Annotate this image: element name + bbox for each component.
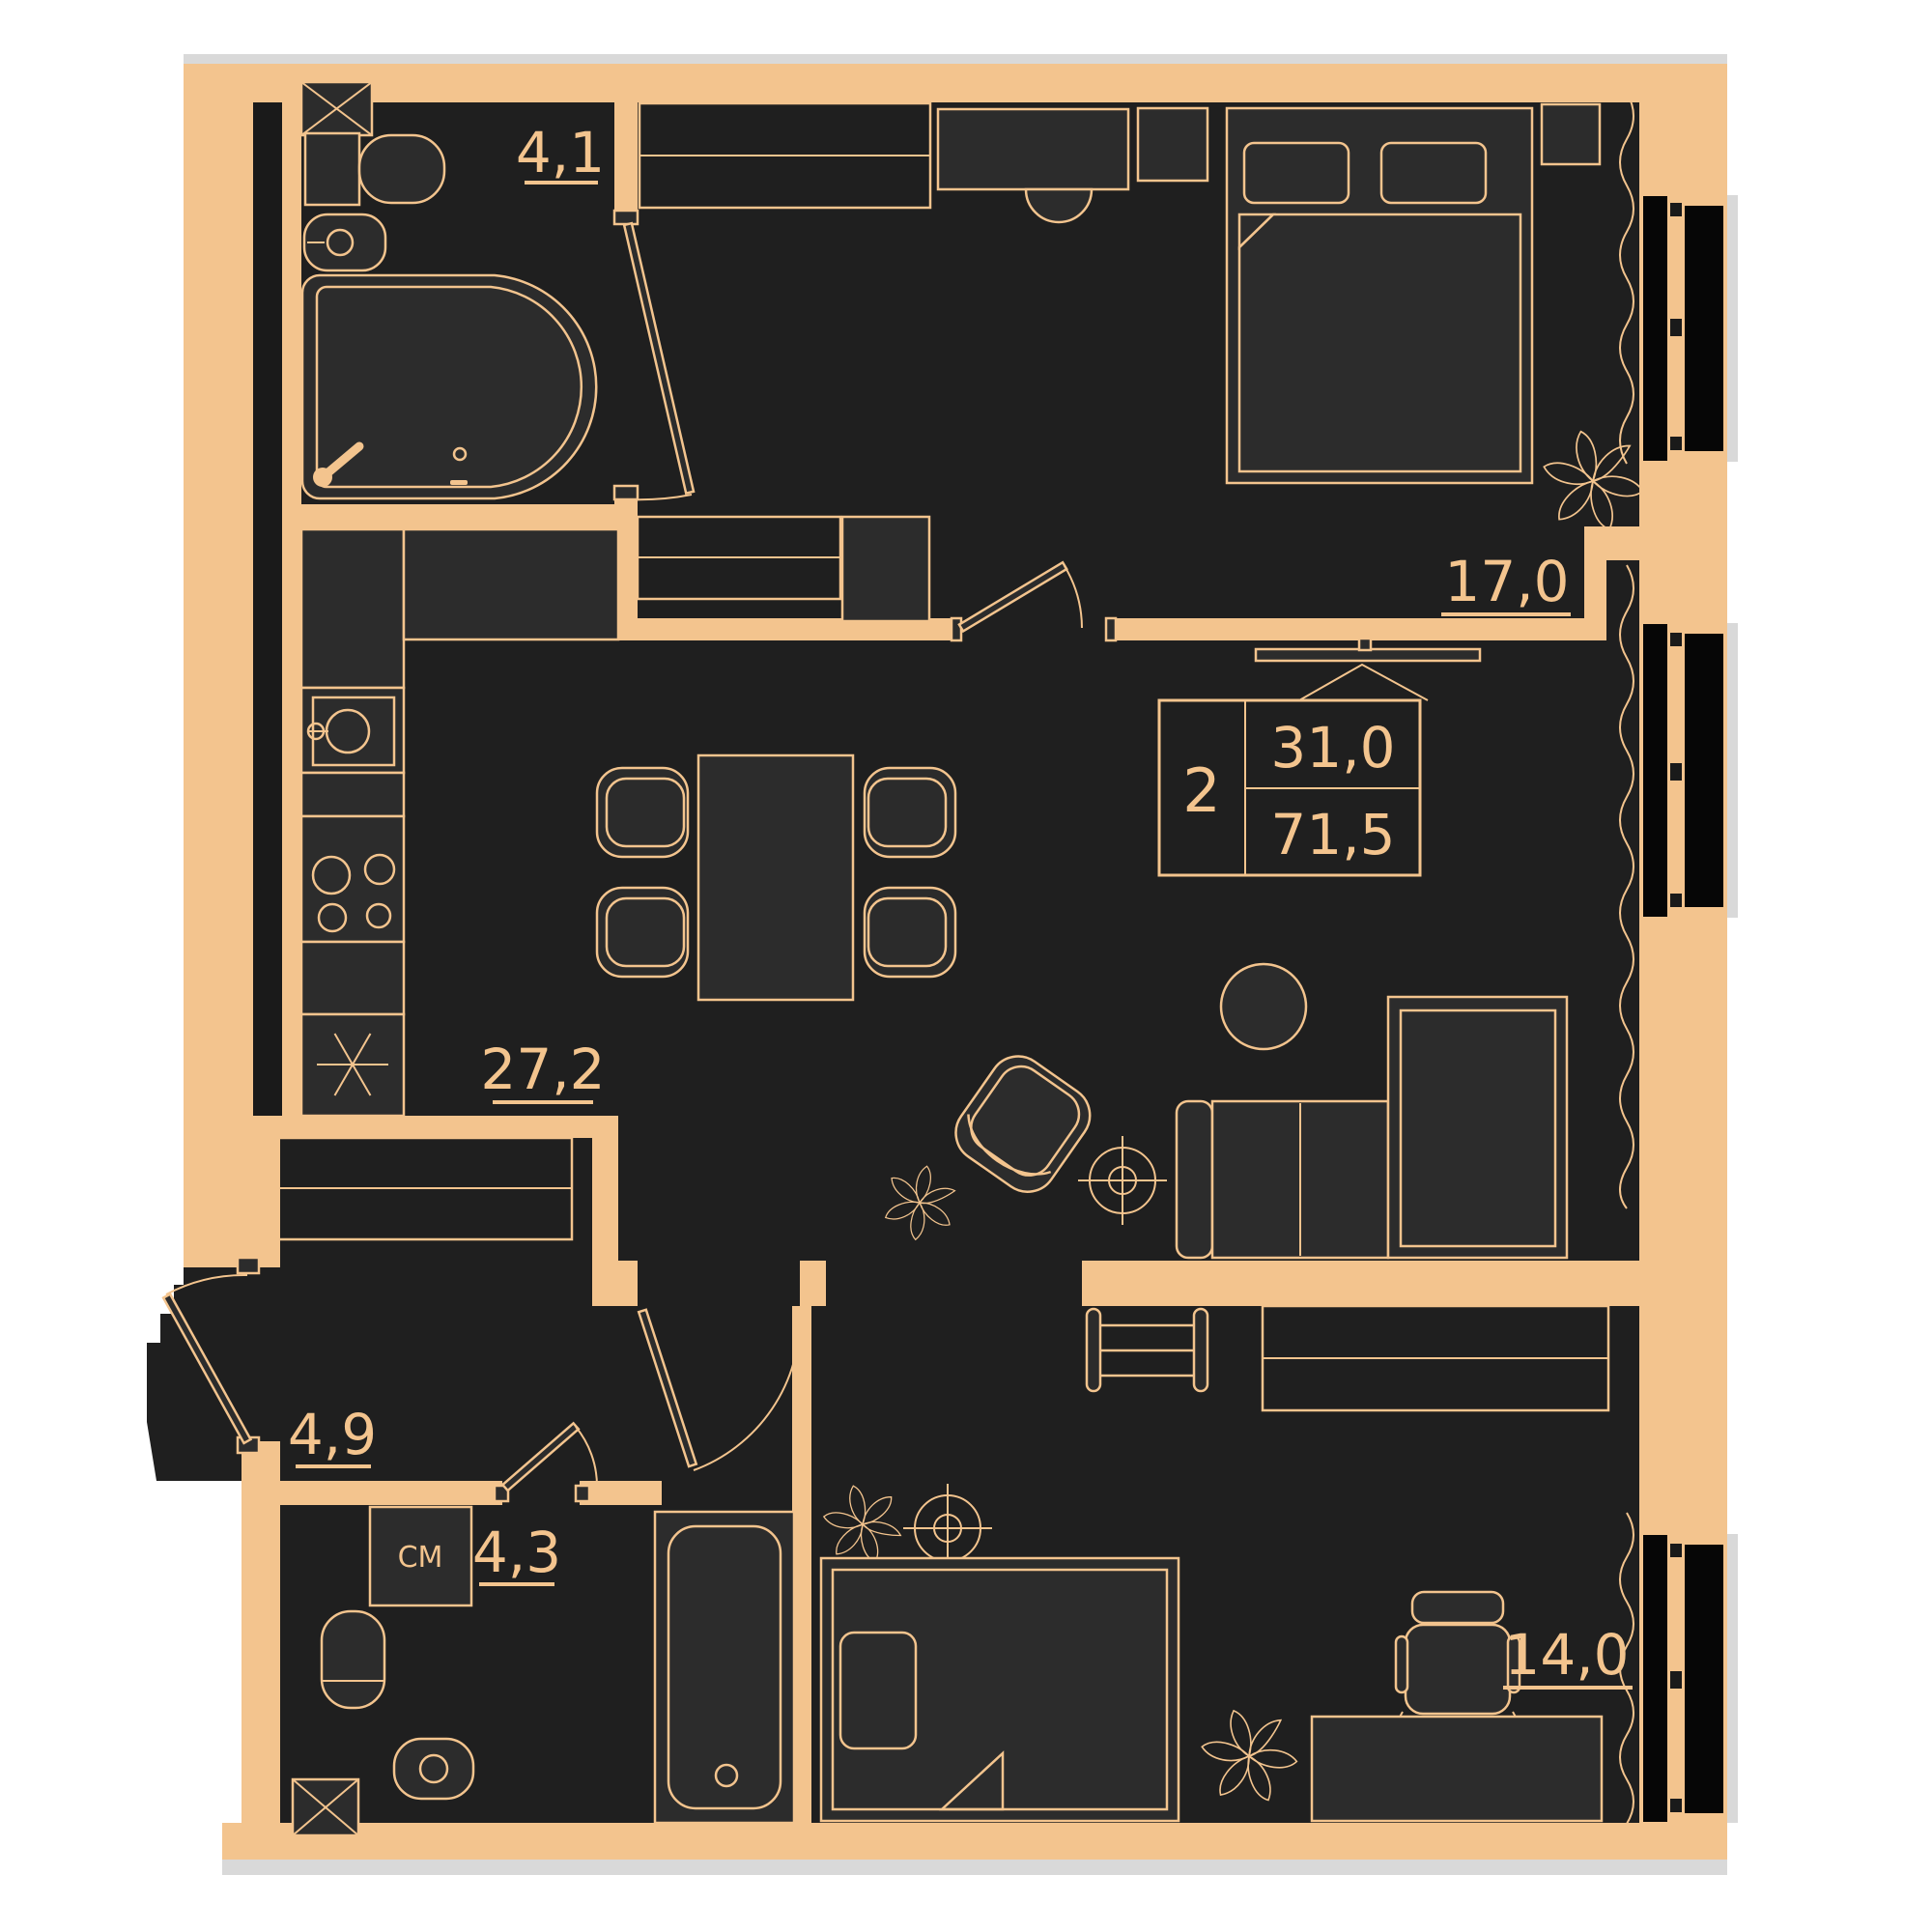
entrance-landing: [147, 1256, 241, 1481]
window-icon: [1642, 623, 1668, 918]
area-label-bedroom1: 17,0: [1444, 549, 1569, 614]
bed-icon: [821, 1558, 1179, 1821]
wall-hall-right: [592, 1138, 618, 1306]
floor-plan-page: 4,1 27,2: [0, 0, 1932, 1932]
kitchen-counter: [301, 942, 404, 1014]
kitchen-sink-icon: [301, 688, 404, 773]
bathtub-icon: [655, 1512, 794, 1823]
wall-divider-c: [1082, 1261, 1727, 1306]
chair-icon: [865, 888, 955, 977]
wall-bathroom1-right-top: [614, 102, 638, 224]
right-shadow-3: [1727, 1534, 1738, 1823]
nightstand-icon: [1138, 108, 1207, 181]
toilet-icon: [322, 1611, 384, 1708]
info-living-area: 31,0: [1270, 715, 1395, 781]
window-icon: [1642, 195, 1668, 462]
label-underline: [296, 1464, 371, 1468]
wall-groove: [253, 102, 282, 1116]
label-underline: [525, 181, 598, 185]
info-box: 2 31,0 71,5: [1159, 700, 1420, 875]
wall-divider-b: [800, 1261, 826, 1306]
hallway: 4,9: [288, 1402, 377, 1468]
wall-divider-a: [618, 1261, 638, 1306]
wall-hall-bottom-b: [580, 1481, 662, 1505]
area-label-bathroom1: 4,1: [516, 120, 605, 185]
shaft-icon: [293, 1779, 358, 1835]
wall-left-mid: [184, 1138, 280, 1267]
top-shadow: [184, 54, 1727, 64]
label-underline: [493, 1100, 593, 1104]
coffee-table-icon: [1221, 964, 1306, 1049]
nightstand-icon: [1542, 104, 1600, 164]
washbasin-icon: [304, 214, 385, 270]
window-icon: [1684, 1544, 1724, 1814]
wall-bottom: [222, 1823, 1727, 1860]
info-total-area: 71,5: [1270, 802, 1395, 867]
area-label-hallway: 4,9: [288, 1402, 377, 1467]
window-living: [1642, 623, 1724, 918]
desk-icon: [938, 109, 1128, 189]
area-label-kitchen-living: 27,2: [480, 1037, 605, 1102]
washing-machine-icon: СМ: [370, 1507, 471, 1605]
stove-icon: [301, 816, 404, 942]
wall-bathroom2-left: [241, 1505, 280, 1823]
pillow-icon: [840, 1633, 916, 1748]
desk-icon: [1312, 1717, 1602, 1821]
pillow-icon: [1381, 143, 1486, 203]
wall-bathroom1-bottom: [240, 504, 638, 529]
wall-bedroom1-bottom-b: [1106, 618, 1584, 640]
wall-bedroom1-jog-conn: [1584, 526, 1606, 640]
kitchen-counter: [301, 529, 404, 688]
label-underline: [1503, 1686, 1633, 1690]
label-underline: [1441, 612, 1571, 616]
chair-icon: [865, 768, 955, 857]
pillow-icon: [1244, 143, 1349, 203]
washing-machine-label: СМ: [398, 1541, 443, 1575]
shaft-icon: [301, 82, 372, 135]
window-bedroom2: [1642, 1534, 1724, 1823]
dishwasher-icon: [301, 1014, 404, 1116]
window-bedroom1: [1642, 195, 1724, 462]
bottom-shadow: [222, 1860, 1727, 1875]
area-label-bedroom2: 14,0: [1504, 1622, 1629, 1688]
info-room-count: 2: [1182, 755, 1220, 826]
toilet-icon: [305, 133, 444, 205]
wall-hall-bottom-a: [241, 1481, 502, 1505]
window-icon: [1642, 1534, 1668, 1823]
label-underline: [479, 1582, 554, 1586]
chair-icon: [597, 768, 688, 857]
right-shadow-1: [1727, 195, 1738, 462]
kitchen-peninsula: [404, 529, 618, 639]
area-label-bathroom2: 4,3: [472, 1520, 561, 1585]
wall-kitchen-bottom: [301, 1116, 618, 1138]
chair-icon: [597, 888, 688, 977]
floor-plan: 4,1 27,2: [0, 0, 1932, 1932]
kitchen-counter: [301, 773, 404, 816]
wall-top: [184, 64, 1727, 102]
dining-table-icon: [698, 755, 853, 1000]
bed-icon: [1227, 108, 1532, 483]
window-icon: [1684, 205, 1724, 452]
bathtub-icon: [302, 275, 596, 498]
outside-cut: [145, 1481, 241, 1829]
washbasin-icon: [394, 1739, 473, 1799]
right-shadow-2: [1727, 623, 1738, 918]
closet-icon: [842, 517, 929, 621]
window-icon: [1684, 633, 1724, 908]
wall-left-upper: [184, 102, 301, 1138]
desk-chair-icon: [1393, 1592, 1522, 1729]
